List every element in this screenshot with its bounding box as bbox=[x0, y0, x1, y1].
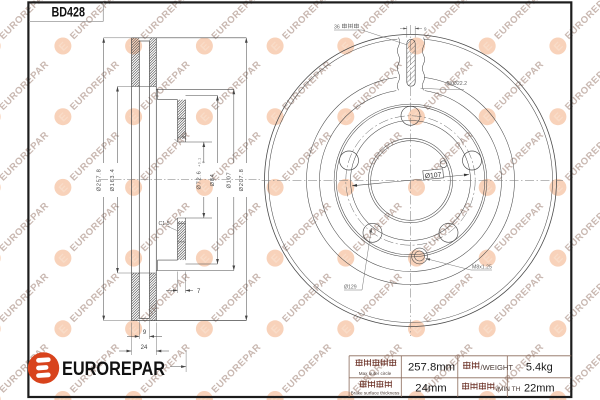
svg-text:22mm: 22mm bbox=[524, 383, 555, 395]
svg-text:C1.5: C1.5 bbox=[159, 221, 170, 227]
svg-text:Ø107: Ø107 bbox=[227, 172, 233, 189]
svg-text:36: 36 bbox=[334, 25, 340, 31]
svg-text:Max outer circle: Max outer circle bbox=[359, 371, 392, 376]
svg-text:24: 24 bbox=[141, 345, 148, 351]
svg-text:/WEIGHT: /WEIGHT bbox=[481, 363, 514, 372]
svg-text:Brake surface thickness: Brake surface thickness bbox=[351, 391, 400, 396]
svg-text:EUROREPAR: EUROREPAR bbox=[62, 359, 165, 380]
svg-text:257.8mm: 257.8mm bbox=[408, 362, 455, 374]
svg-text:5XØ22.2: 5XØ22.2 bbox=[447, 81, 468, 87]
svg-text:BD428: BD428 bbox=[52, 4, 86, 20]
svg-text:Ø207.8: Ø207.8 bbox=[239, 169, 245, 192]
svg-text:Ø84: Ø84 bbox=[210, 174, 216, 187]
svg-text:0: 0 bbox=[202, 161, 206, 164]
svg-text:5.4kg: 5.4kg bbox=[526, 362, 553, 374]
svg-text:Ø257.8: Ø257.8 bbox=[96, 169, 102, 192]
svg-text:Ø163.4: Ø163.4 bbox=[110, 169, 116, 192]
svg-text:Ø72.6: Ø72.6 bbox=[197, 171, 203, 190]
svg-text:M8x1.25: M8x1.25 bbox=[472, 265, 492, 271]
svg-text:/MIN TH: /MIN TH bbox=[496, 386, 521, 393]
svg-text:24mm: 24mm bbox=[415, 383, 446, 395]
svg-text:Ø129: Ø129 bbox=[344, 285, 357, 291]
